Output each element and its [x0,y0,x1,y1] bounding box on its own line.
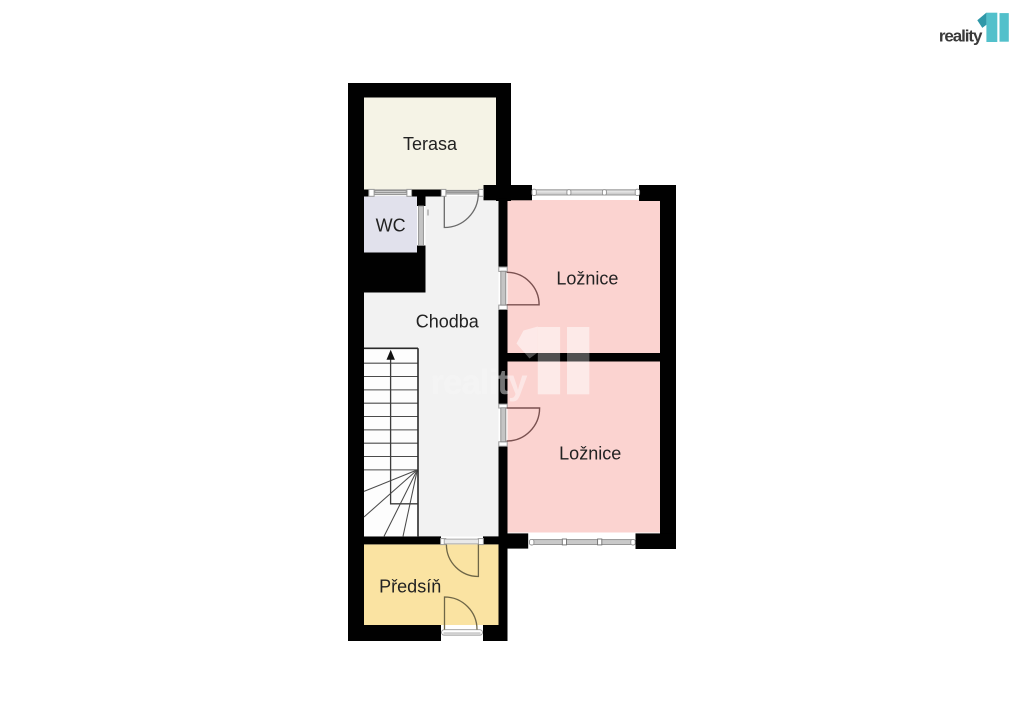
svg-text:reality: reality [939,27,983,46]
svg-text:Ložnice: Ložnice [559,444,621,464]
svg-text:Chodba: Chodba [416,312,480,332]
svg-text:Terasa: Terasa [403,134,458,154]
svg-text:Předsíň: Předsíň [379,576,441,596]
svg-text:WC: WC [376,216,406,236]
svg-text:Ložnice: Ložnice [556,269,618,289]
